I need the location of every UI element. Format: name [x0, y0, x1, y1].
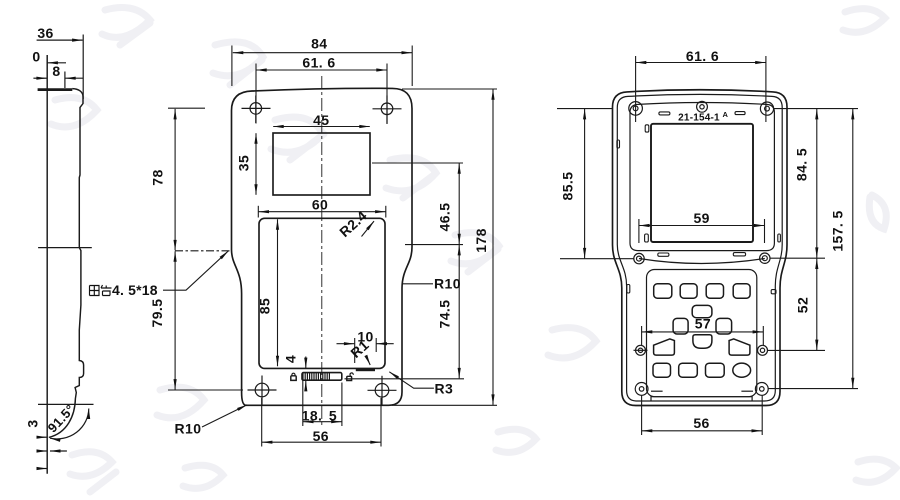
svg-text:178: 178	[473, 228, 489, 253]
svg-text:R2.4: R2.4	[336, 207, 370, 240]
svg-text:91.5°: 91.5°	[45, 401, 78, 435]
svg-text:84. 5: 84. 5	[794, 148, 810, 181]
svg-text:R10: R10	[175, 421, 202, 437]
svg-text:60: 60	[312, 197, 328, 213]
svg-text:85: 85	[257, 298, 273, 314]
svg-text:3: 3	[25, 419, 41, 427]
svg-text:4: 4	[282, 355, 298, 363]
svg-text:21-154-1: 21-154-1	[678, 113, 720, 124]
svg-text:45: 45	[313, 112, 329, 128]
svg-text:78: 78	[150, 169, 166, 185]
svg-text:0: 0	[32, 49, 40, 65]
svg-text:157. 5: 157. 5	[830, 210, 846, 251]
svg-text:79.5: 79.5	[149, 299, 165, 328]
svg-text:84: 84	[311, 36, 327, 52]
svg-text:57: 57	[695, 316, 711, 332]
svg-text:56: 56	[313, 428, 329, 444]
svg-text:4. 5*18: 4. 5*18	[112, 282, 158, 298]
svg-text:61. 6: 61. 6	[686, 48, 719, 64]
svg-text:52: 52	[795, 297, 811, 313]
svg-text:R10: R10	[434, 276, 461, 292]
svg-text:18.: 18.	[302, 408, 323, 424]
svg-text:74.5: 74.5	[437, 300, 453, 329]
svg-text:46.5: 46.5	[437, 203, 453, 232]
svg-text:5: 5	[329, 408, 337, 424]
svg-text:85.5: 85.5	[560, 172, 576, 201]
svg-text:36: 36	[37, 25, 53, 41]
svg-text:59: 59	[694, 210, 710, 226]
svg-text:35: 35	[236, 155, 252, 171]
svg-text:8: 8	[52, 63, 60, 79]
svg-text:61. 6: 61. 6	[302, 55, 335, 71]
svg-text:56: 56	[693, 415, 709, 431]
svg-text:R3: R3	[435, 381, 454, 397]
svg-text:A: A	[723, 110, 729, 119]
